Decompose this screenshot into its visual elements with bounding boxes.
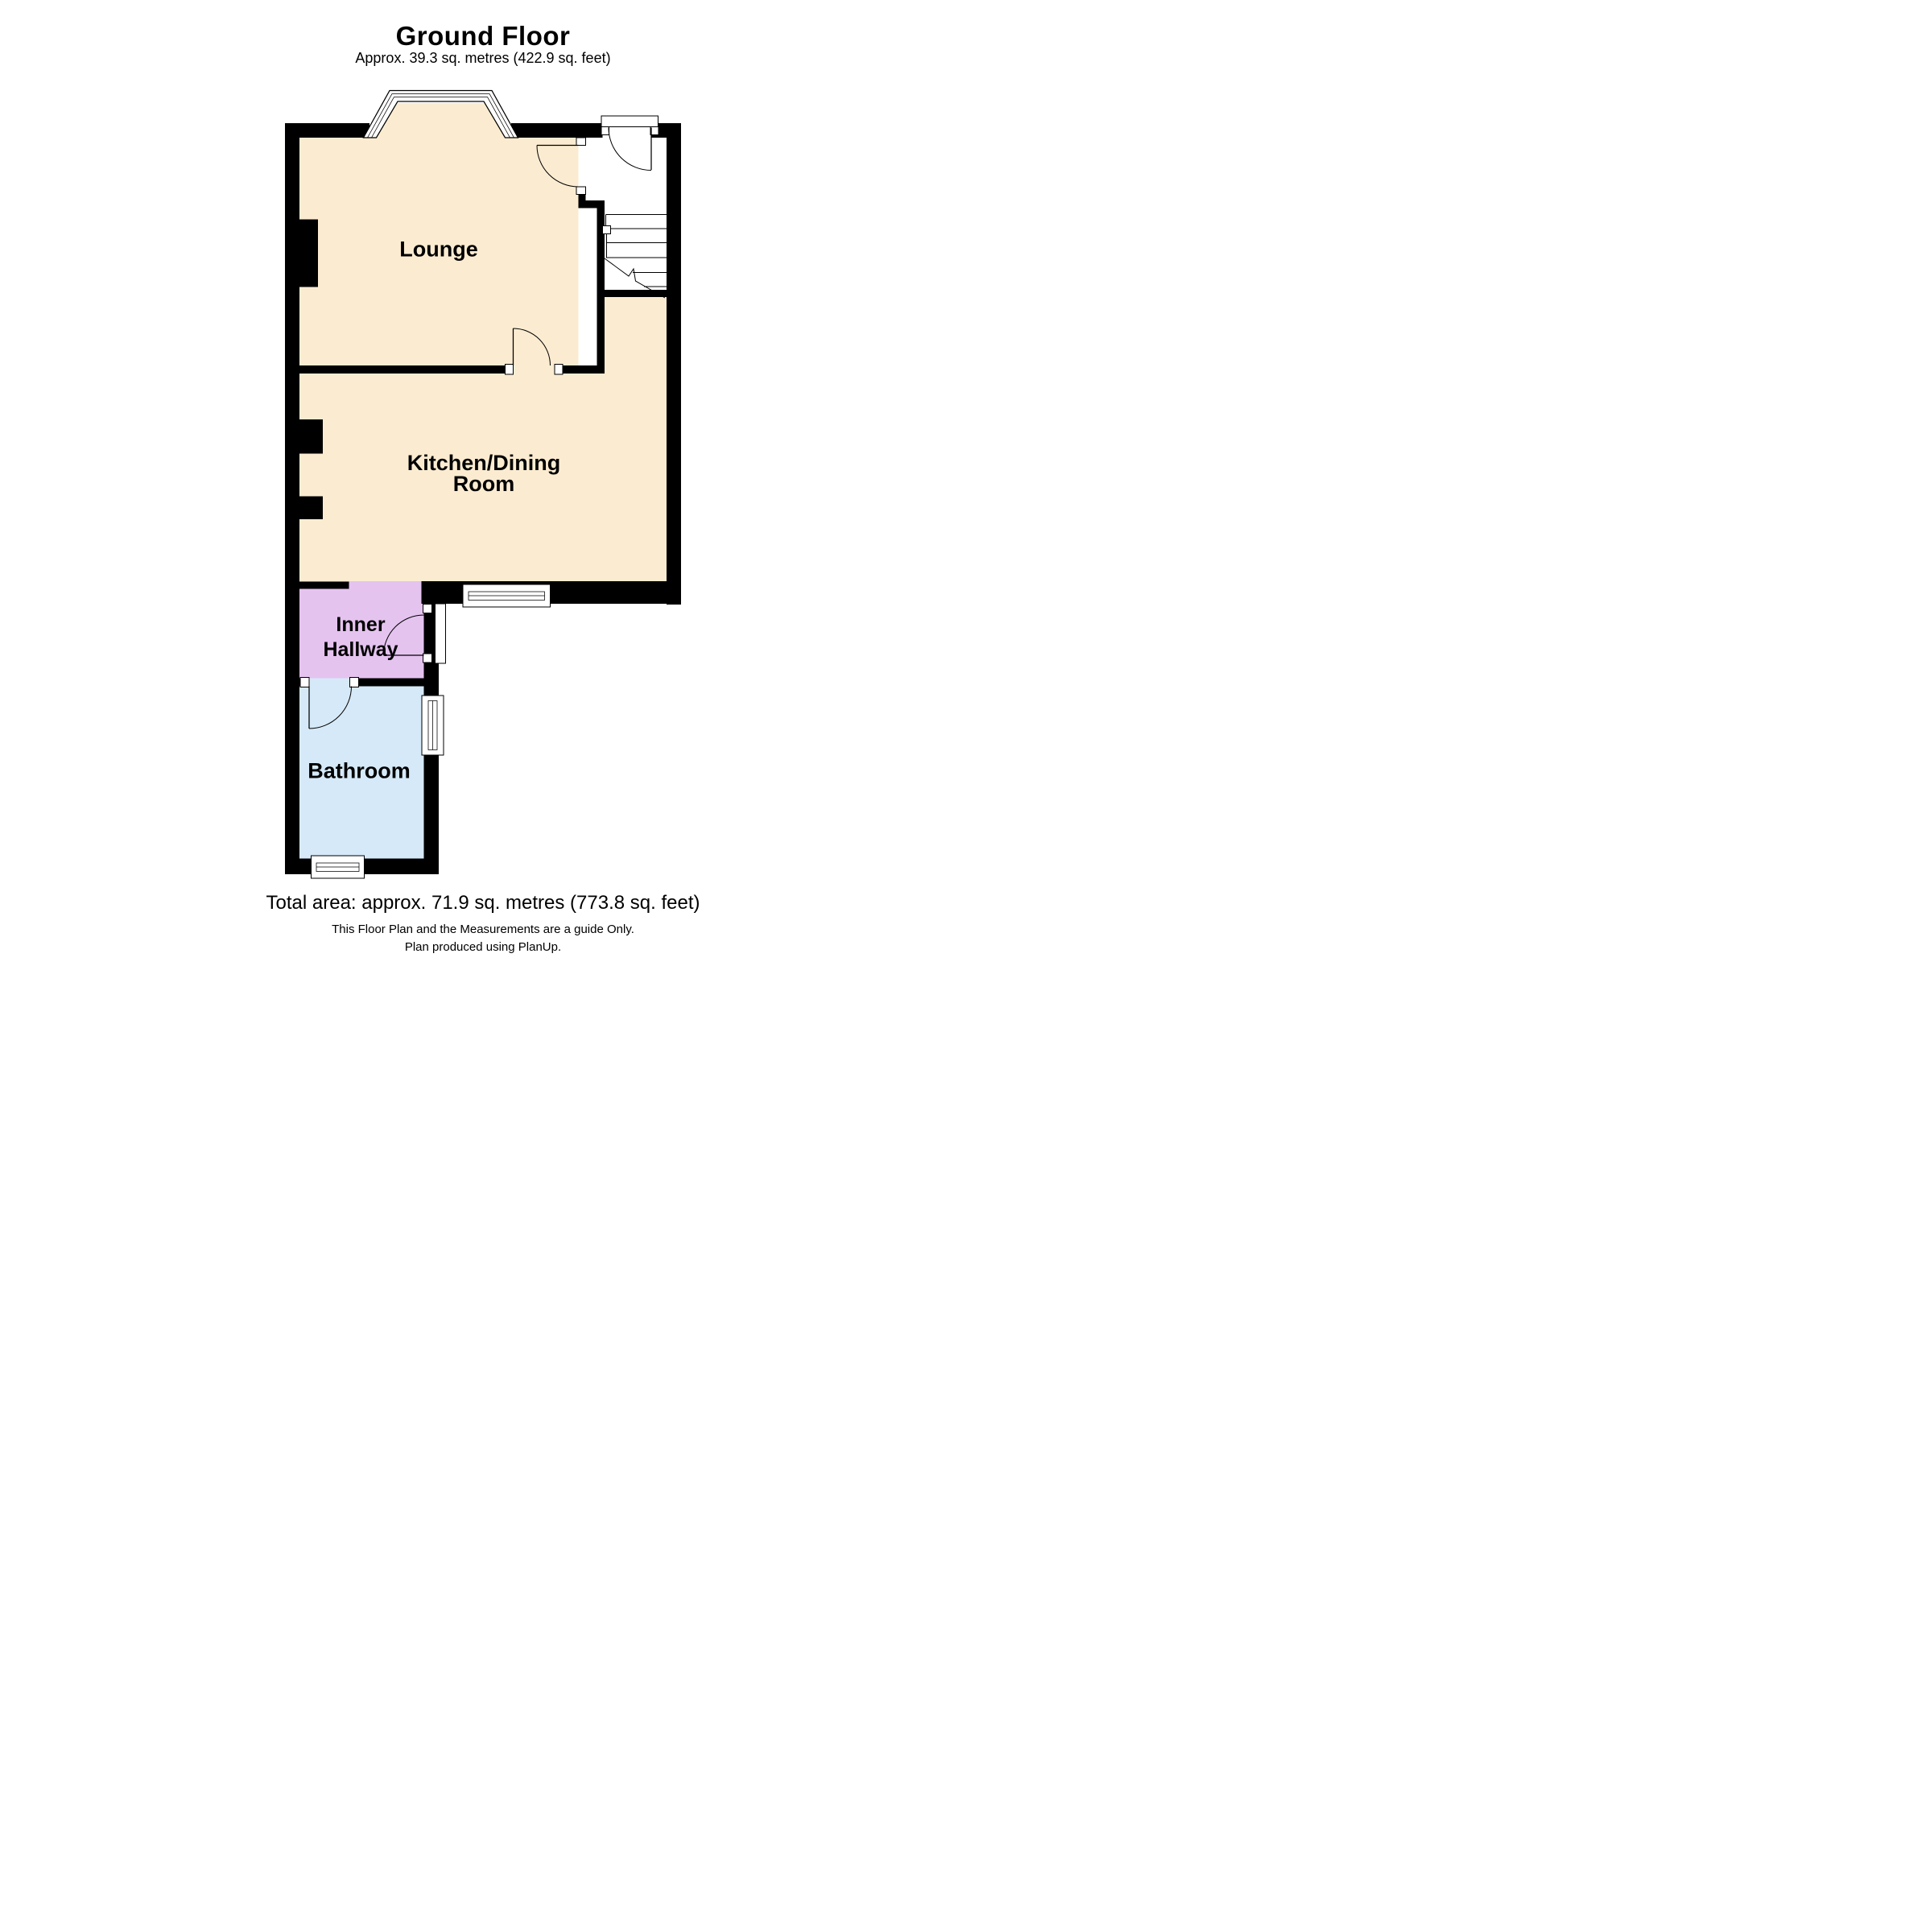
kitchen-label-line2: Room: [407, 473, 561, 494]
kitchen-door-jamb-right: [555, 365, 563, 375]
bathroom-label: Bathroom: [308, 759, 411, 784]
front-door-threshold: [601, 116, 658, 127]
disclaimer-text: This Floor Plan and the Measurements are…: [0, 923, 966, 936]
lounge-door-jamb-top: [576, 138, 586, 146]
wall-kitchen-bottom: [422, 581, 682, 604]
wall-pier-kitchen-lower: [299, 497, 323, 520]
stair-newel-post: [603, 226, 611, 234]
bathroom-side-window: [422, 696, 444, 755]
wall-left-exterior: [285, 123, 299, 874]
kitchen-window: [463, 584, 551, 607]
kitchen-door-jamb-left: [506, 365, 514, 375]
lounge-label-text: Lounge: [399, 237, 477, 262]
lounge-label: Lounge: [399, 237, 477, 262]
hallway-label-line1: Inner: [323, 613, 398, 638]
total-area-text: Total area: approx. 71.9 sq. metres (773…: [0, 892, 966, 914]
front-door-jamb-left: [601, 126, 609, 135]
wall-hallway-top: [299, 582, 349, 589]
back-door-slab: [436, 604, 446, 663]
opening-lounge-hall: [579, 146, 586, 188]
lounge-room-area: [299, 103, 579, 365]
inner-hallway-label: Inner Hallway: [323, 613, 398, 663]
lounge-door-jamb-bottom: [576, 187, 586, 195]
kitchen-label-line1: Kitchen/Dining: [407, 452, 561, 473]
produced-by-text: Plan produced using PlanUp.: [0, 940, 966, 954]
back-door-jamb-bottom: [423, 654, 432, 663]
wall-stairs-bottom: [597, 290, 682, 297]
bathroom-bottom-window: [312, 856, 365, 878]
wall-pier-kitchen-upper: [299, 419, 323, 454]
kitchen-dining-label: Kitchen/Dining Room: [407, 452, 561, 494]
back-door-jamb-top: [423, 605, 432, 613]
opening-hallway-bathroom: [309, 679, 351, 687]
wall-right-exterior: [667, 123, 681, 605]
wall-top-right: [511, 123, 603, 138]
bathroom-door-jamb-right: [350, 678, 359, 687]
opening-lounge-kitchen: [514, 365, 555, 374]
floor-plan-page: Ground Floor Approx. 39.3 sq. metres (42…: [0, 0, 966, 966]
chimney-breast-lounge: [299, 220, 318, 287]
wall-top-left: [285, 123, 369, 138]
bathroom-door-jamb-left: [300, 678, 309, 687]
wall-hall-step: [585, 200, 605, 208]
bathroom-label-text: Bathroom: [308, 759, 411, 784]
hallway-label-line2: Hallway: [323, 638, 398, 663]
